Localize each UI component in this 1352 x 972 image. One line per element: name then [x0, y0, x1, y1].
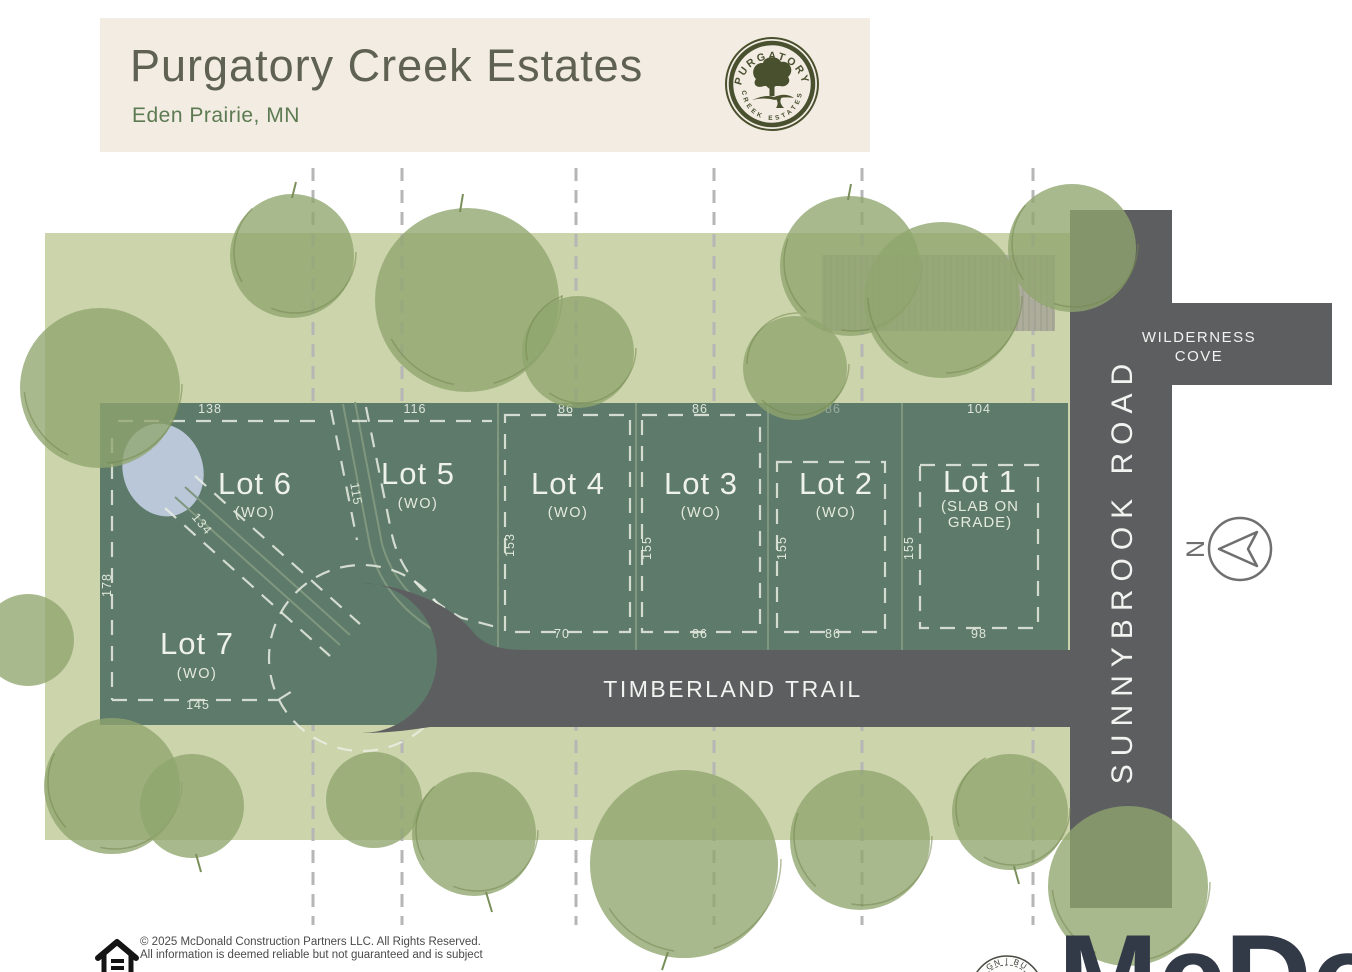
dim-lot3-top: 86	[692, 402, 708, 416]
tree	[140, 754, 244, 858]
dim-lot4-bottom: 70	[554, 627, 570, 641]
dim-lot1-top: 104	[967, 402, 991, 416]
lot5-label: Lot 5	[381, 456, 455, 491]
tree	[864, 222, 1020, 378]
page-title: Purgatory Creek Estates	[130, 40, 643, 92]
copyright-line1: © 2025 McDonald Construction Partners LL…	[140, 936, 483, 949]
equal-housing-icon	[98, 942, 136, 972]
lot5-type: (WO)	[398, 496, 439, 512]
lot1-type-line2: GRADE)	[948, 514, 1012, 531]
dim-lot7-bottom: 145	[186, 698, 210, 712]
builder-seal-icon: GN | BU	[971, 956, 1043, 972]
footer-copyright: © 2025 McDonald Construction Partners LL…	[140, 936, 483, 962]
community-logo: PURGATORY CREEK ESTATES	[723, 35, 821, 133]
tree	[790, 770, 930, 910]
lot1-type-line1: (SLAB ON	[941, 498, 1019, 515]
dim-lot7-side: 178	[100, 573, 114, 597]
compass-north-label: N	[1182, 540, 1210, 558]
dim-lot5-top: 116	[404, 402, 427, 416]
tree-stem	[486, 892, 492, 912]
dim-lot2-side: 155	[775, 536, 789, 560]
lot7-type: (WO)	[177, 666, 218, 682]
lot7-label: Lot 7	[160, 626, 234, 661]
sunnybrook-road-label: SUNNYBROOK ROAD	[1106, 356, 1139, 784]
tree	[20, 308, 180, 468]
dim-lot2-bottom: 86	[825, 627, 841, 641]
builder-brand-wordmark: McDonald	[1058, 908, 1352, 972]
lot3-label: Lot 3	[664, 466, 738, 501]
lot2-label: Lot 2	[799, 466, 873, 501]
lot6-label: Lot 6	[218, 466, 292, 501]
wilderness-cove-label-line2: COVE	[1175, 348, 1224, 365]
dim-lot6-top: 138	[198, 402, 222, 416]
lot2-type: (WO)	[816, 505, 857, 521]
site-plan-page: 138 116 86 86 86 104 70 86 86 98 145 178…	[0, 0, 1352, 972]
copyright-line2: All information is deemed reliable but n…	[140, 949, 483, 962]
lot6-type: (WO)	[235, 505, 276, 521]
lot1-label: Lot 1	[943, 464, 1017, 499]
tree	[326, 752, 422, 848]
compass: N	[1182, 518, 1271, 580]
lot3-type: (WO)	[681, 505, 722, 521]
dim-lot3-side: 155	[640, 536, 654, 560]
wilderness-cove-label-line1: WILDERNESS	[1142, 329, 1256, 346]
tree	[590, 770, 778, 958]
header-banner: Purgatory Creek Estates Eden Prairie, MN…	[100, 18, 870, 152]
dim-lot1-side: 155	[902, 536, 916, 560]
tree	[1008, 184, 1136, 312]
page-subtitle: Eden Prairie, MN	[132, 104, 300, 128]
lot4-type: (WO)	[548, 505, 589, 521]
timberland-trail-label: TIMBERLAND TRAIL	[603, 676, 862, 702]
lot4-label: Lot 4	[531, 466, 605, 501]
dim-lot4-side: 153	[503, 533, 517, 557]
dim-lot3-bottom: 86	[692, 627, 708, 641]
dim-lot1-bottom: 98	[971, 627, 987, 641]
